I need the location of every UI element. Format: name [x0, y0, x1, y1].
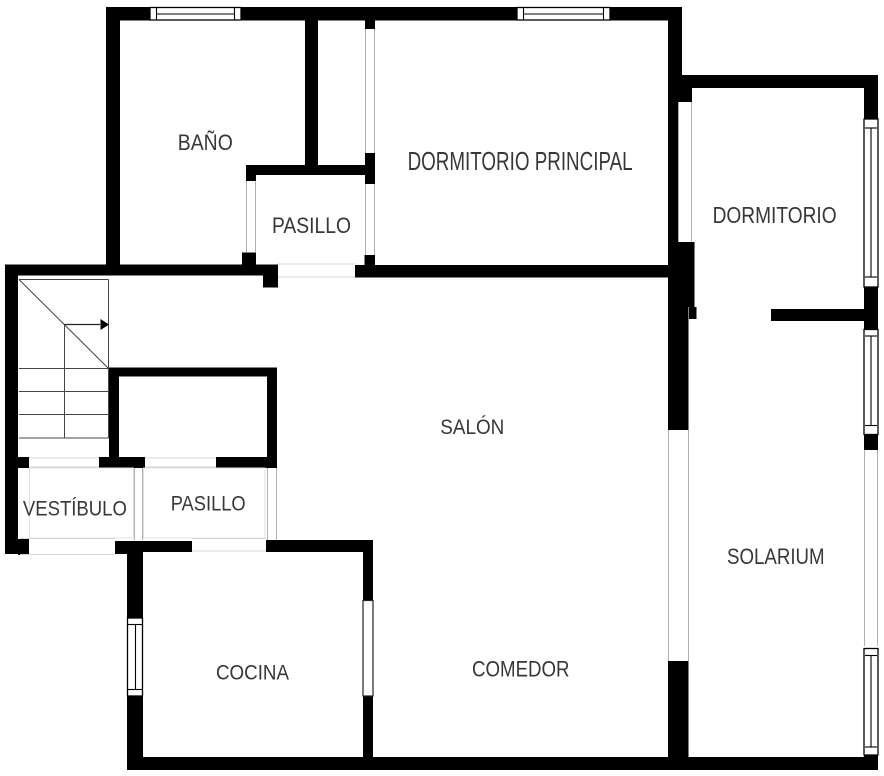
svg-text:COCINA: COCINA [216, 662, 289, 685]
svg-text:PASILLO: PASILLO [272, 213, 351, 238]
svg-text:BAÑO: BAÑO [178, 130, 233, 155]
svg-text:SALÓN: SALÓN [440, 416, 504, 439]
svg-text:SOLARIUM: SOLARIUM [727, 544, 825, 569]
svg-text:VESTÍBULO: VESTÍBULO [23, 495, 127, 520]
svg-text:COMEDOR: COMEDOR [472, 657, 570, 682]
svg-text:DORMITORIO PRINCIPAL: DORMITORIO PRINCIPAL [408, 146, 633, 176]
svg-text:PASILLO: PASILLO [171, 492, 246, 516]
svg-text:DORMITORIO: DORMITORIO [713, 202, 837, 228]
